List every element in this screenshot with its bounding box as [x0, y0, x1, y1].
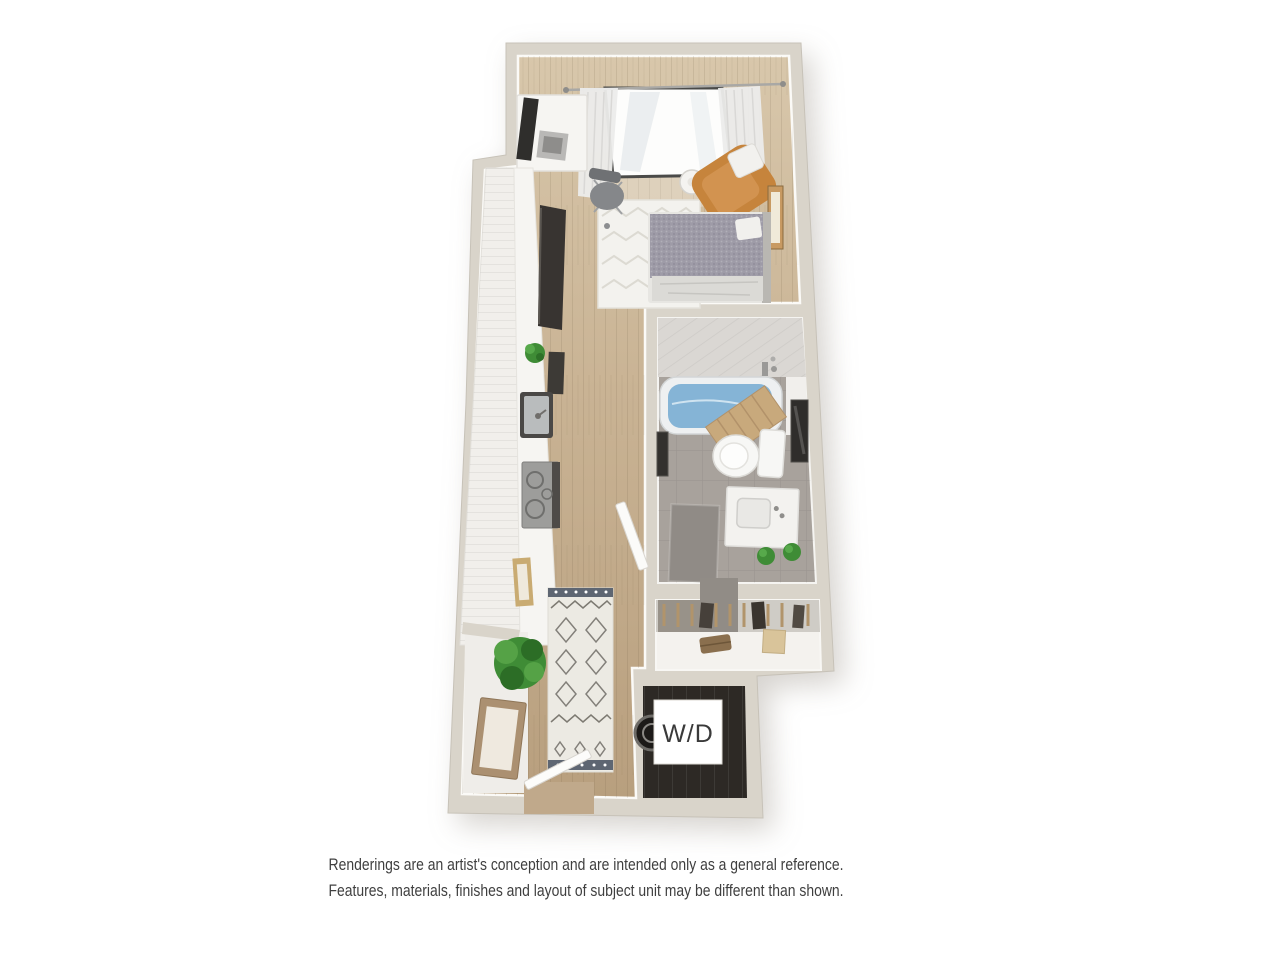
storage-box	[762, 629, 785, 653]
wd-label: W/D	[654, 700, 722, 764]
curtain-rod-finial	[780, 81, 786, 87]
bathroom	[655, 318, 820, 588]
page: W/D	[0, 0, 1280, 960]
vanity-sink	[737, 498, 771, 528]
microwave	[547, 352, 564, 395]
leaning-frame	[512, 557, 533, 606]
stove	[522, 462, 560, 528]
curtain-rod-finial	[563, 87, 569, 93]
bed-pillow	[735, 216, 763, 240]
floor-plan-image: W/D	[0, 0, 1280, 960]
bed	[648, 212, 771, 303]
bath-mat	[669, 504, 720, 583]
leaning-mirror	[657, 432, 668, 476]
hallway-rug	[548, 588, 613, 772]
bed-sheet	[652, 276, 763, 301]
apartment-building: W/D	[448, 43, 834, 818]
kitchen-sink	[520, 392, 553, 438]
vanity-plant	[783, 543, 801, 561]
wd-label-text: W/D	[662, 720, 714, 748]
hanging-garment	[792, 605, 805, 629]
disclaimer-line-1: Renderings are an artist's conception an…	[328, 852, 843, 878]
leaning-bench-frame	[471, 697, 526, 779]
counter-plant	[525, 343, 545, 363]
disclaimer-text: Renderings are an artist's conception an…	[328, 852, 843, 904]
desk	[516, 95, 587, 171]
washer-dryer-room: W/D	[635, 686, 747, 798]
hanging-garment	[699, 603, 714, 629]
disclaimer-line-2: Features, materials, finishes and layout…	[328, 878, 843, 904]
refrigerator	[538, 205, 566, 330]
hanging-garment	[751, 602, 766, 630]
vanity-plant	[757, 547, 775, 565]
vanity	[725, 487, 799, 548]
